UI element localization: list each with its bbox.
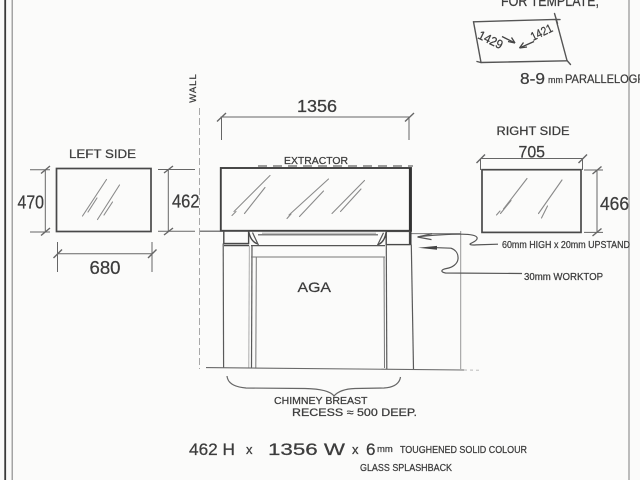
svg-text:FOR TEMPLATE,: FOR TEMPLATE, [501, 0, 599, 10]
svg-text:1429: 1429 [476, 28, 506, 52]
svg-text:680: 680 [90, 257, 121, 278]
svg-text:LEFT SIDE: LEFT SIDE [69, 149, 136, 161]
svg-text:462 H: 462 H [189, 440, 235, 459]
svg-text:mm: mm [548, 75, 563, 85]
svg-text:EXTRACTOR: EXTRACTOR [284, 155, 348, 167]
svg-text:470: 470 [18, 193, 45, 213]
svg-text:462: 462 [172, 192, 200, 212]
svg-text:x: x [352, 442, 359, 457]
svg-text:WALL: WALL [188, 73, 199, 103]
svg-text:TOUGHENED SOLID COLOUR: TOUGHENED SOLID COLOUR [400, 444, 527, 456]
svg-text:mm: mm [377, 444, 393, 455]
svg-text:GLASS SPLASHBACK: GLASS SPLASHBACK [360, 462, 452, 474]
svg-text:CHIMNEY BREAST: CHIMNEY BREAST [274, 395, 368, 407]
svg-text:x: x [246, 442, 253, 457]
svg-text:6: 6 [366, 440, 375, 459]
svg-text:PARALLELOGRAM: PARALLELOGRAM [565, 72, 640, 86]
svg-text:1421: 1421 [528, 21, 555, 44]
svg-text:466: 466 [600, 194, 629, 214]
svg-text:8-9: 8-9 [520, 71, 545, 88]
svg-text:1356: 1356 [297, 96, 337, 116]
svg-text:60mm HIGH x 20mm UPSTAND: 60mm HIGH x 20mm UPSTAND [502, 240, 630, 251]
svg-text:1356 W: 1356 W [268, 440, 345, 459]
svg-text:AGA: AGA [298, 279, 332, 295]
svg-text:30mm WORKTOP: 30mm WORKTOP [524, 271, 603, 283]
svg-text:RIGHT SIDE: RIGHT SIDE [497, 126, 570, 138]
svg-text:RECESS ≈ 500 DEEP.: RECESS ≈ 500 DEEP. [292, 407, 417, 419]
svg-text:705: 705 [519, 143, 546, 162]
